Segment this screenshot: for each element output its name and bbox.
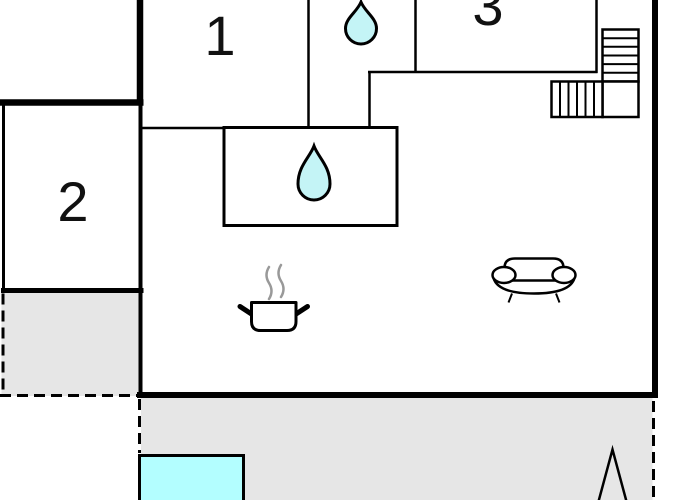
terrace-left-fill: [2, 293, 139, 396]
water-drop-icon: [346, 2, 377, 44]
sofa-armrest-right: [553, 267, 576, 283]
room-2-label: 2: [57, 170, 88, 233]
sofa-icon: [493, 259, 576, 303]
terrace-left: [0, 293, 139, 397]
steam-line: [279, 265, 284, 297]
floor-plan-canvas: 1 2 3: [0, 0, 700, 500]
floor-plan-drawing: 1 2 3: [0, 0, 700, 500]
sofa-armrest-left: [493, 267, 516, 283]
cooking-pot-icon: [240, 265, 308, 331]
pot-body: [252, 303, 297, 331]
sofa-leg-right: [556, 294, 560, 303]
room-1-label: 1: [204, 4, 235, 67]
pool: [140, 456, 244, 500]
steam-line: [267, 267, 272, 299]
pool-icon: [140, 456, 244, 500]
bathroom-inner: [224, 128, 397, 226]
stairs-landing: [603, 82, 639, 118]
sofa-leg-left: [509, 294, 513, 303]
room-3-label: 3: [472, 0, 503, 37]
